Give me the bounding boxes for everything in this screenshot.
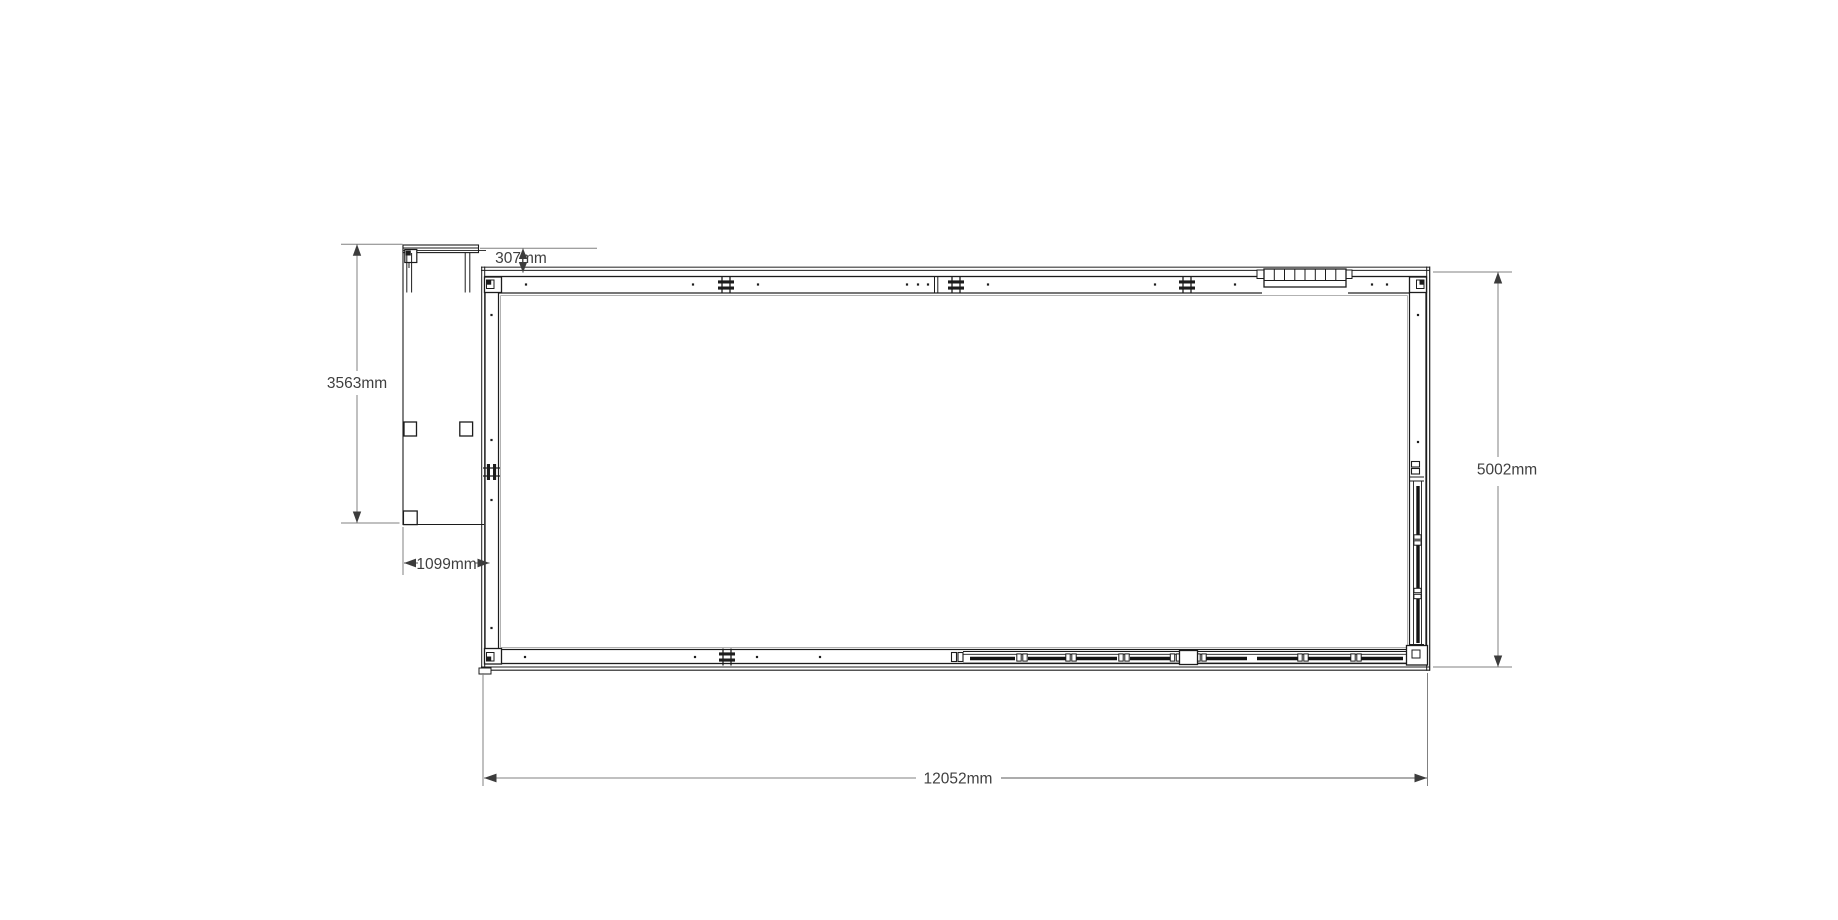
corner-foot (479, 668, 491, 674)
wall-band (485, 277, 1426, 664)
corner-post-bottom-right (1407, 646, 1428, 666)
dim-overall-width: 12052mm (483, 673, 1428, 788)
corner-post-top-right (1410, 277, 1427, 293)
dim-overall-depth: 5002mm (1433, 272, 1537, 667)
corner-post-top-left (485, 277, 502, 293)
dim-overall-depth-label: 5002mm (1477, 462, 1537, 479)
dim-annex-width-label: 1099mm (416, 556, 476, 573)
arrow-up-icon (353, 244, 361, 256)
dim-annex-depth: 3563mm (327, 244, 403, 523)
arrow-down-icon (353, 512, 361, 524)
arrow-down-icon (1494, 656, 1502, 668)
dim-annex-width: 1099mm (403, 527, 490, 575)
floor-plan-svg: 3563mm 307mm 1099mm 12052mm (0, 0, 1838, 920)
arrow-left-icon (404, 559, 416, 568)
arrow-up-icon (1494, 272, 1502, 284)
porch-footings (403, 422, 472, 525)
window-unit (1257, 269, 1352, 295)
arrow-left-icon (484, 774, 497, 783)
dim-overall-width-label: 12052mm (924, 771, 993, 788)
dim-annex-depth-label: 3563mm (327, 375, 387, 392)
main-building (479, 267, 1430, 675)
annex-porch (403, 245, 486, 525)
door-pier (1180, 651, 1198, 665)
corner-post-bottom-left (485, 649, 502, 665)
dim-canopy-offset: 307mm (480, 248, 597, 273)
drawing-canvas[interactable]: 3563mm 307mm 1099mm 12052mm (0, 0, 1838, 920)
arrow-right-icon (1415, 774, 1428, 783)
